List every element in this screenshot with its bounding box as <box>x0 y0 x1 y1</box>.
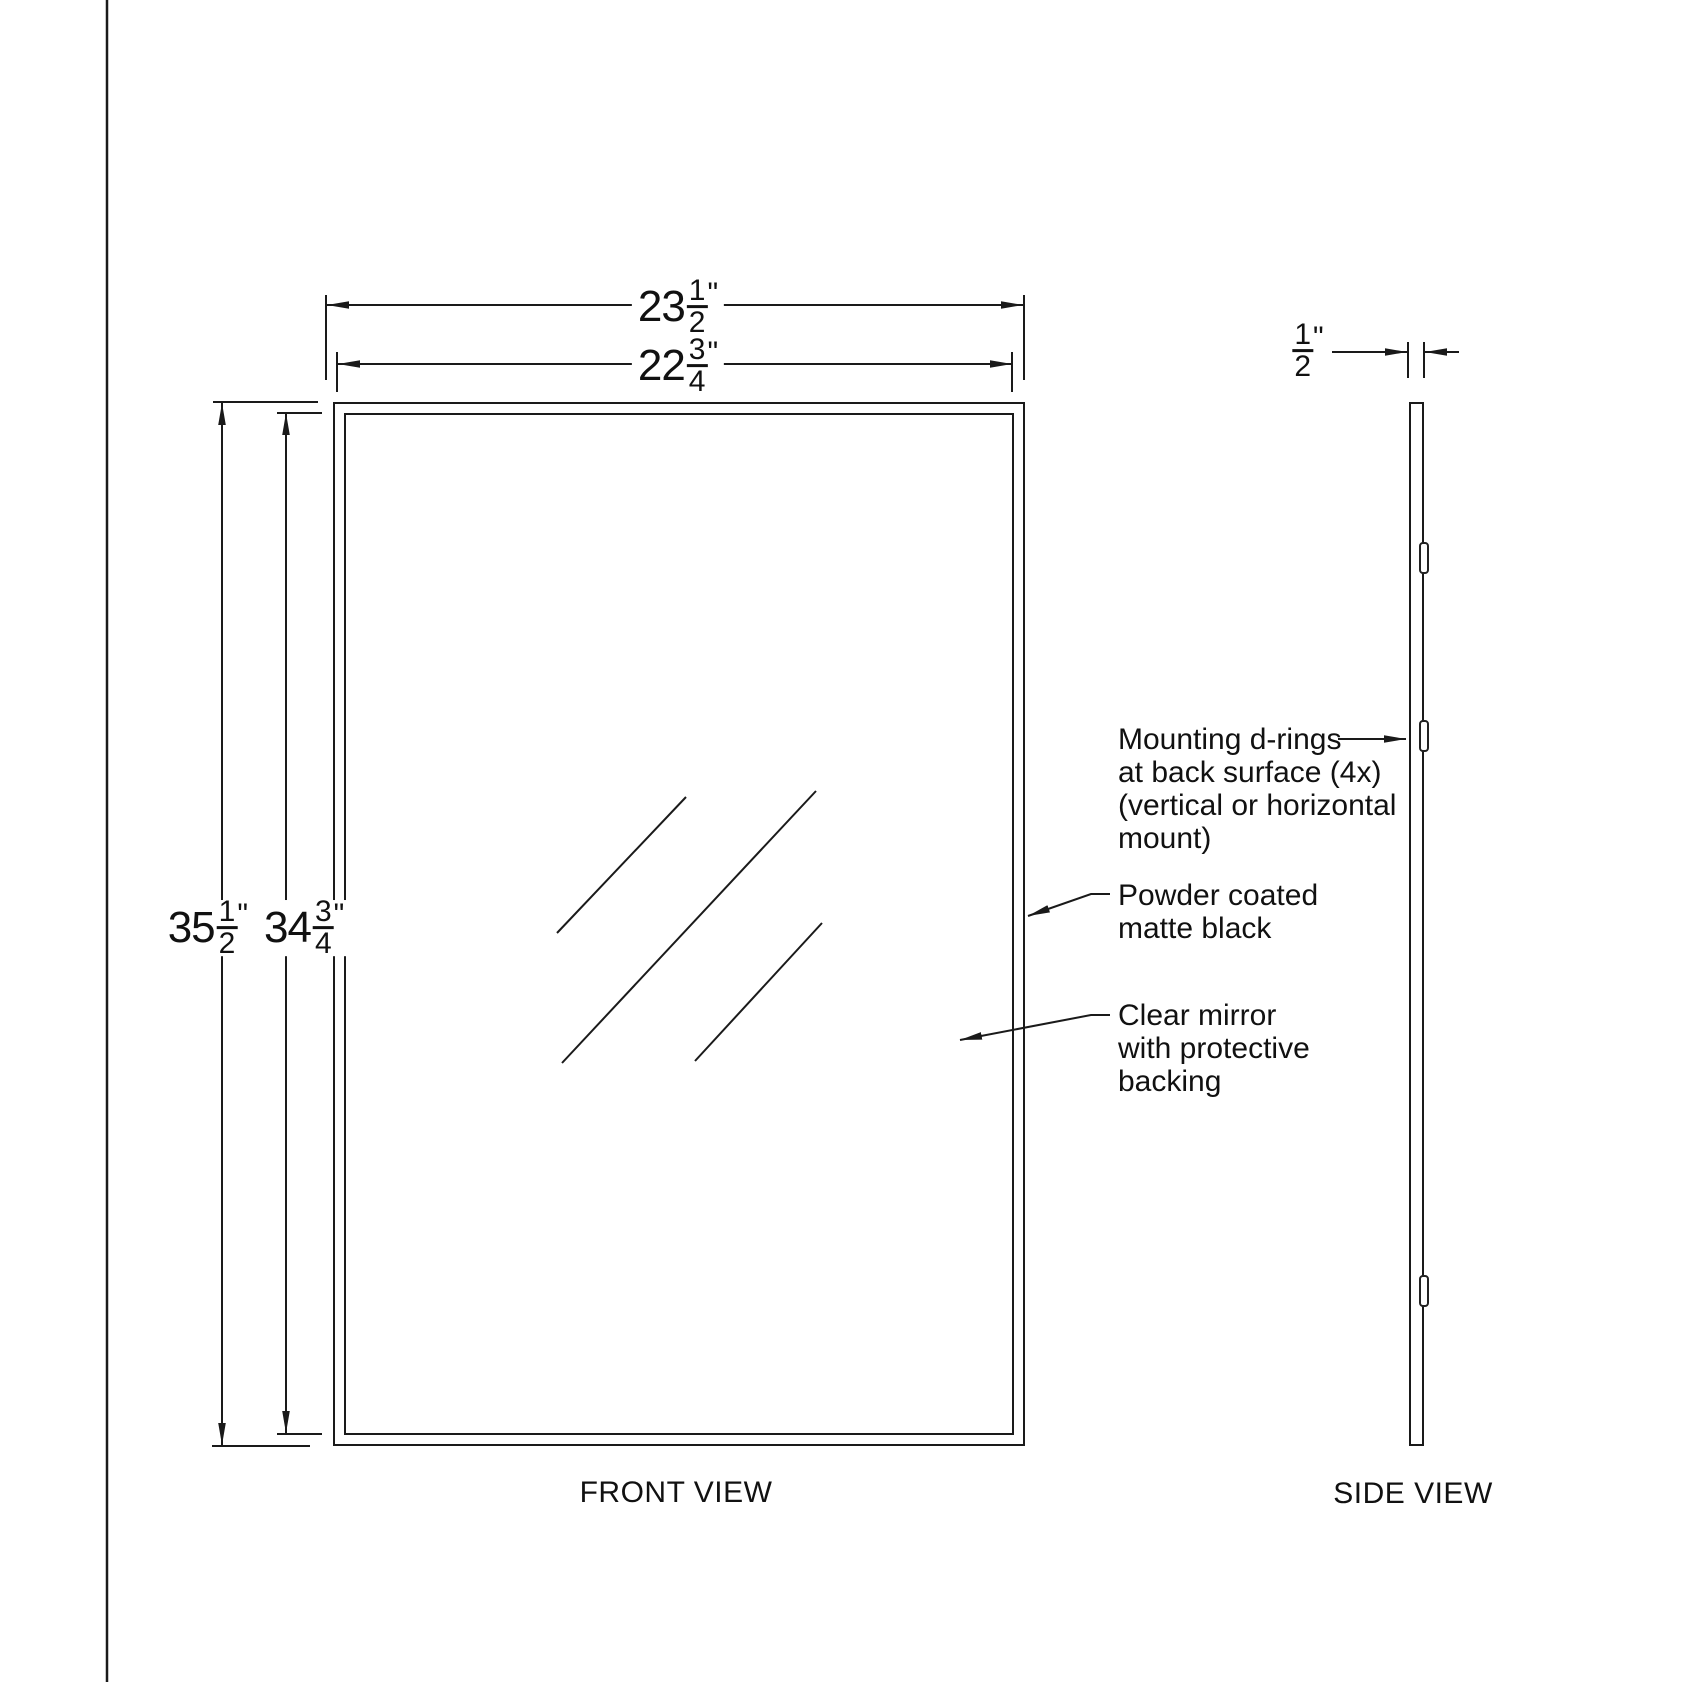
note-line: Mounting d-rings <box>1118 723 1396 756</box>
inch-mark: " <box>707 279 718 309</box>
inch-mark: " <box>334 900 345 930</box>
dim-inner-width-whole: 22 <box>638 344 685 388</box>
note-mounting-d-rings: Mounting d-rings at back surface (4x) (v… <box>1118 723 1396 855</box>
dim-inner-width: 2234" <box>632 338 724 394</box>
inch-mark: " <box>237 900 248 930</box>
d-ring-bottom <box>1419 1275 1429 1307</box>
dim-outer-width: 2312" <box>632 279 724 335</box>
d-ring-top <box>1419 542 1429 574</box>
note-line: Powder coated <box>1118 879 1318 912</box>
note-clear-mirror: Clear mirror with protective backing <box>1118 999 1310 1098</box>
note-line: with protective <box>1118 1032 1310 1065</box>
side-view-label: SIDE VIEW <box>1333 1477 1493 1511</box>
dim-outer-width-whole: 23 <box>638 285 685 329</box>
dim-inner-width-fraction: 34 <box>687 338 708 394</box>
leader-line-powder-coating <box>1028 894 1110 916</box>
d-ring-middle <box>1419 720 1429 752</box>
dim-thickness: 12" <box>1284 323 1329 379</box>
note-line: mount) <box>1118 822 1396 855</box>
note-line: (vertical or horizontal <box>1118 789 1396 822</box>
note-line: backing <box>1118 1065 1310 1098</box>
note-line: Clear mirror <box>1118 999 1310 1032</box>
dim-outer-height: 3512" <box>166 900 250 956</box>
note-powder-coating: Powder coated matte black <box>1118 879 1318 945</box>
note-line: at back surface (4x) <box>1118 756 1396 789</box>
mirror-glass-inner <box>344 413 1014 1435</box>
dim-inner-height: 3434" <box>262 900 346 956</box>
inch-mark: " <box>707 338 718 368</box>
dims-height-pair: 3512" 3434" <box>163 900 350 956</box>
inch-mark: " <box>1313 323 1324 353</box>
technical-drawing-sheet: 2312" 2234" 3512" 3434" 12" Mounting d-r… <box>0 0 1682 1682</box>
dim-outer-width-fraction: 12 <box>687 279 708 335</box>
front-view-label: FRONT VIEW <box>580 1476 773 1510</box>
note-line: matte black <box>1118 912 1318 945</box>
